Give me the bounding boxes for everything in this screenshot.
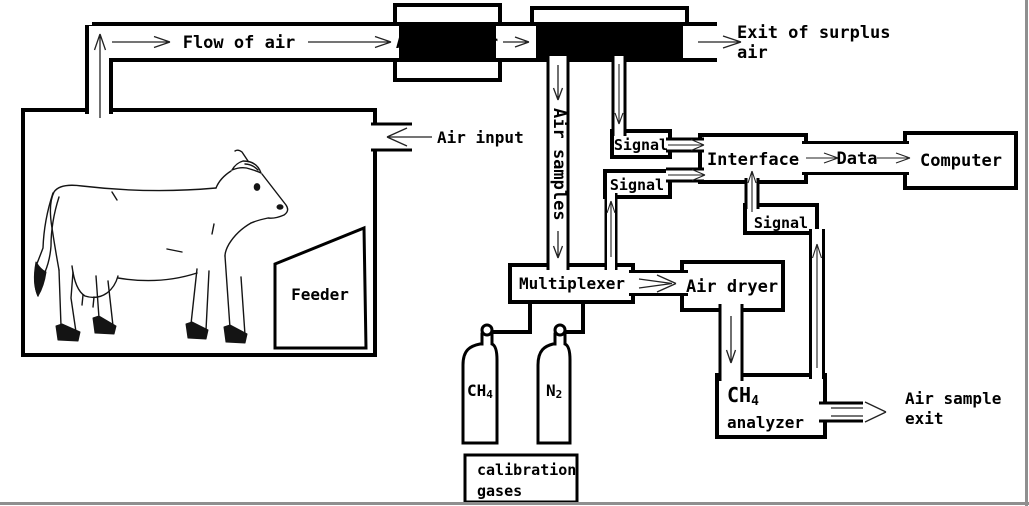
label-air-filter: Air filter — [396, 33, 498, 53]
cylinder-ch4-sub: 4 — [486, 388, 493, 401]
label-signal-3: Signal — [754, 214, 808, 232]
label-computer: Computer — [920, 151, 1002, 171]
label-exit-surplus-line2: air — [737, 43, 768, 63]
label-signal-2: Signal — [610, 176, 664, 194]
analyzer-formula-sub: 4 — [751, 394, 759, 409]
label-calibration-line2: gases — [477, 482, 522, 500]
cylinder-n2-main: N — [546, 381, 556, 400]
diagram-canvas: Flow of air Air filter Mass flowmeter Ex… — [0, 0, 1029, 506]
label-multiplexer: Multiplexer — [519, 274, 625, 293]
label-air-sample-exit-line1: Air sample — [905, 389, 1001, 408]
gas-supply-lines — [482, 300, 583, 335]
label-calibration-line1: calibration — [477, 461, 576, 479]
ch4-valve — [482, 325, 492, 335]
label-air-input: Air input — [437, 128, 524, 147]
label-interface: Interface — [707, 150, 799, 170]
label-flow-of-air: Flow of air — [183, 33, 296, 53]
label-exit-surplus-line1: Exit of surplus — [737, 23, 891, 43]
label-air-sample-exit-line2: exit — [905, 409, 944, 428]
cylinder-n2-sub: 2 — [556, 388, 563, 401]
analyzer-formula-main: CH — [727, 383, 751, 407]
label-signal-1: Signal — [614, 136, 668, 154]
label-mass-flowmeter: Mass flowmeter — [537, 33, 680, 53]
frame-right-edge — [1025, 0, 1028, 506]
label-air-dryer: Air dryer — [686, 277, 778, 297]
frame-bottom-edge — [0, 502, 1029, 505]
label-air-samples: Air samples — [549, 108, 569, 221]
cylinder-ch4-main: CH — [467, 381, 486, 400]
label-analyzer-word: analyzer — [727, 413, 804, 432]
label-data: Data — [837, 149, 878, 169]
label-feeder: Feeder — [291, 285, 349, 304]
n2-valve — [555, 325, 565, 335]
